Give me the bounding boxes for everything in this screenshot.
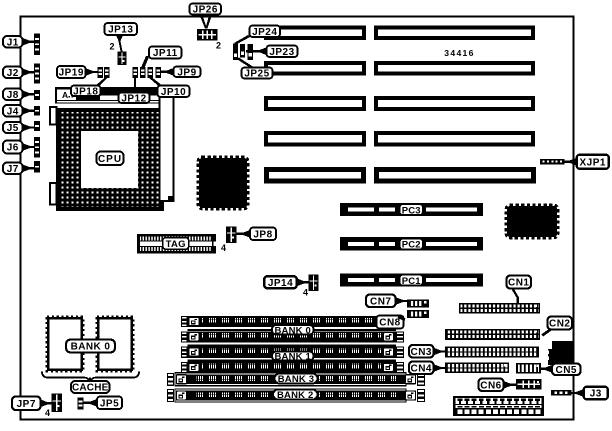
svg-text:BANK 2: BANK 2: [277, 390, 314, 401]
svg-text:JP26: JP26: [193, 5, 218, 16]
svg-text:J2: J2: [7, 68, 19, 79]
svg-text:JP7: JP7: [17, 399, 36, 410]
svg-text:J3: J3: [590, 389, 602, 400]
svg-text:4: 4: [45, 408, 50, 418]
svg-text:JP13: JP13: [108, 25, 133, 36]
svg-text:CACHE: CACHE: [72, 383, 109, 394]
svg-text:J1: J1: [7, 37, 19, 48]
svg-text:CN5: CN5: [555, 365, 577, 376]
svg-text:CN8: CN8: [379, 318, 401, 329]
svg-text:2: 2: [109, 42, 114, 52]
svg-text:CN4: CN4: [410, 363, 432, 374]
svg-text:JP5: JP5: [100, 398, 119, 409]
svg-text:J5: J5: [7, 123, 19, 134]
svg-text:J6: J6: [7, 143, 19, 154]
svg-text:BANK 0: BANK 0: [71, 342, 111, 353]
svg-text:4: 4: [303, 288, 308, 298]
svg-text:34416: 34416: [444, 48, 474, 58]
svg-text:JP8: JP8: [253, 229, 272, 240]
svg-text:JP11: JP11: [153, 48, 178, 59]
svg-text:PC3: PC3: [402, 205, 421, 216]
svg-text:JP24: JP24: [252, 27, 277, 38]
svg-text:CN1: CN1: [508, 278, 530, 289]
svg-text:J7: J7: [7, 164, 19, 175]
svg-text:JP18: JP18: [73, 86, 98, 97]
svg-text:JP14: JP14: [268, 278, 293, 289]
svg-text:JP10: JP10: [161, 87, 186, 98]
svg-text:JP19: JP19: [59, 68, 84, 79]
svg-text:J8: J8: [7, 90, 19, 101]
svg-text:TAG: TAG: [166, 239, 186, 250]
svg-text:JP12: JP12: [121, 93, 146, 104]
svg-text:BANK 0: BANK 0: [274, 325, 311, 336]
svg-text:CN7: CN7: [370, 296, 392, 307]
svg-text:4: 4: [221, 243, 226, 253]
svg-text:J4: J4: [7, 106, 19, 117]
svg-text:2: 2: [216, 41, 221, 51]
svg-text:PC1: PC1: [402, 276, 422, 287]
svg-text:PC2: PC2: [402, 240, 421, 251]
svg-text:BANK 3: BANK 3: [278, 374, 315, 385]
svg-text:JP9: JP9: [177, 67, 196, 78]
svg-text:CN2: CN2: [549, 319, 571, 330]
svg-text:BANK 1: BANK 1: [274, 352, 311, 363]
svg-text:CN6: CN6: [480, 380, 502, 391]
svg-text:XJP1: XJP1: [580, 157, 606, 168]
svg-text:CPU: CPU: [98, 154, 122, 165]
svg-text:CN3: CN3: [410, 347, 432, 358]
svg-text:JP25: JP25: [244, 69, 269, 80]
svg-text:JP23: JP23: [269, 47, 294, 58]
svg-text:A: A: [62, 90, 68, 100]
